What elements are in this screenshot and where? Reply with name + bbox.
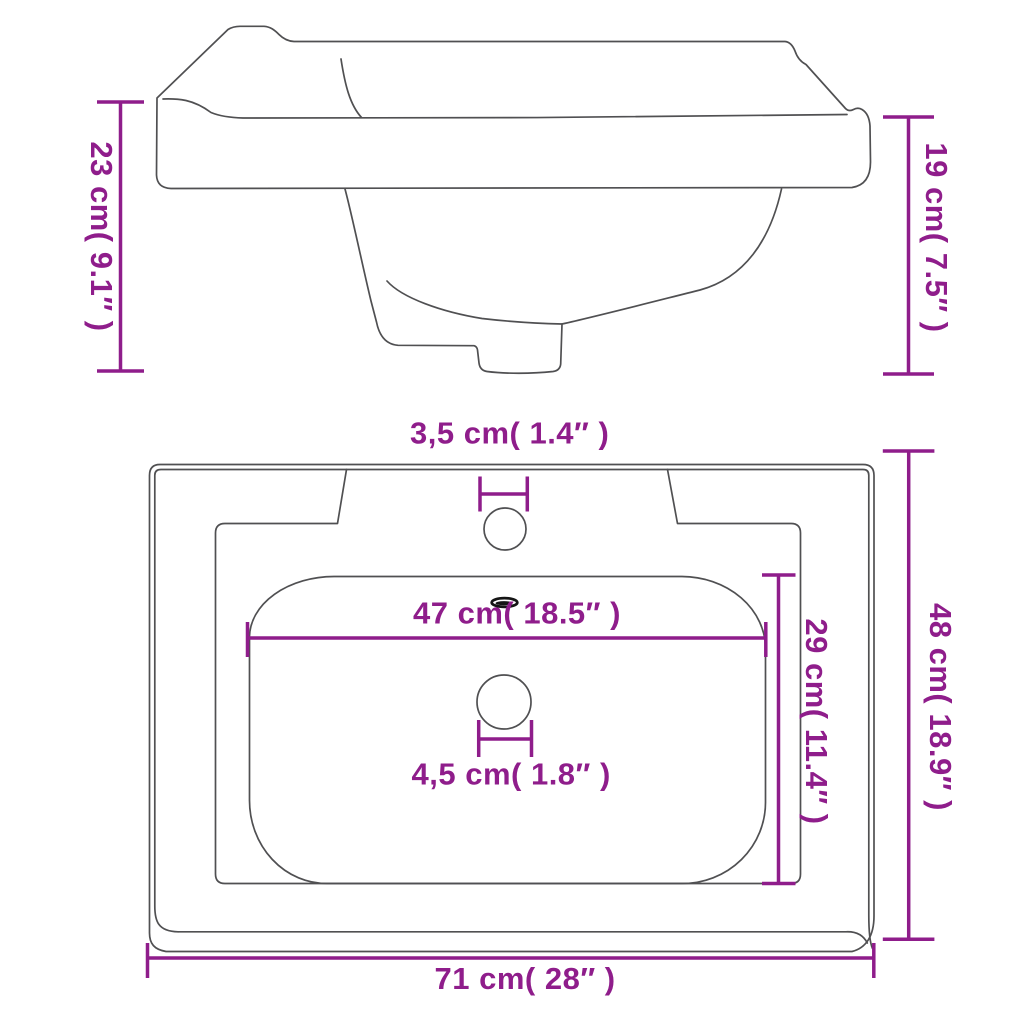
- svg-text:23 cm( 9.1″ ): 23 cm( 9.1″ ): [84, 141, 119, 331]
- svg-text:48 cm( 18.9″ ): 48 cm( 18.9″ ): [923, 603, 958, 811]
- svg-text:4,5 cm( 1.8″ ): 4,5 cm( 1.8″ ): [412, 757, 611, 792]
- svg-text:19 cm( 7.5″ ): 19 cm( 7.5″ ): [919, 142, 954, 332]
- svg-text:29 cm( 11.4″ ): 29 cm( 11.4″ ): [799, 618, 834, 824]
- svg-text:71 cm( 28″ ): 71 cm( 28″ ): [435, 961, 616, 996]
- svg-text:3,5 cm( 1.4″ ): 3,5 cm( 1.4″ ): [410, 416, 609, 451]
- svg-text:47 cm( 18.5″ ): 47 cm( 18.5″ ): [413, 596, 621, 631]
